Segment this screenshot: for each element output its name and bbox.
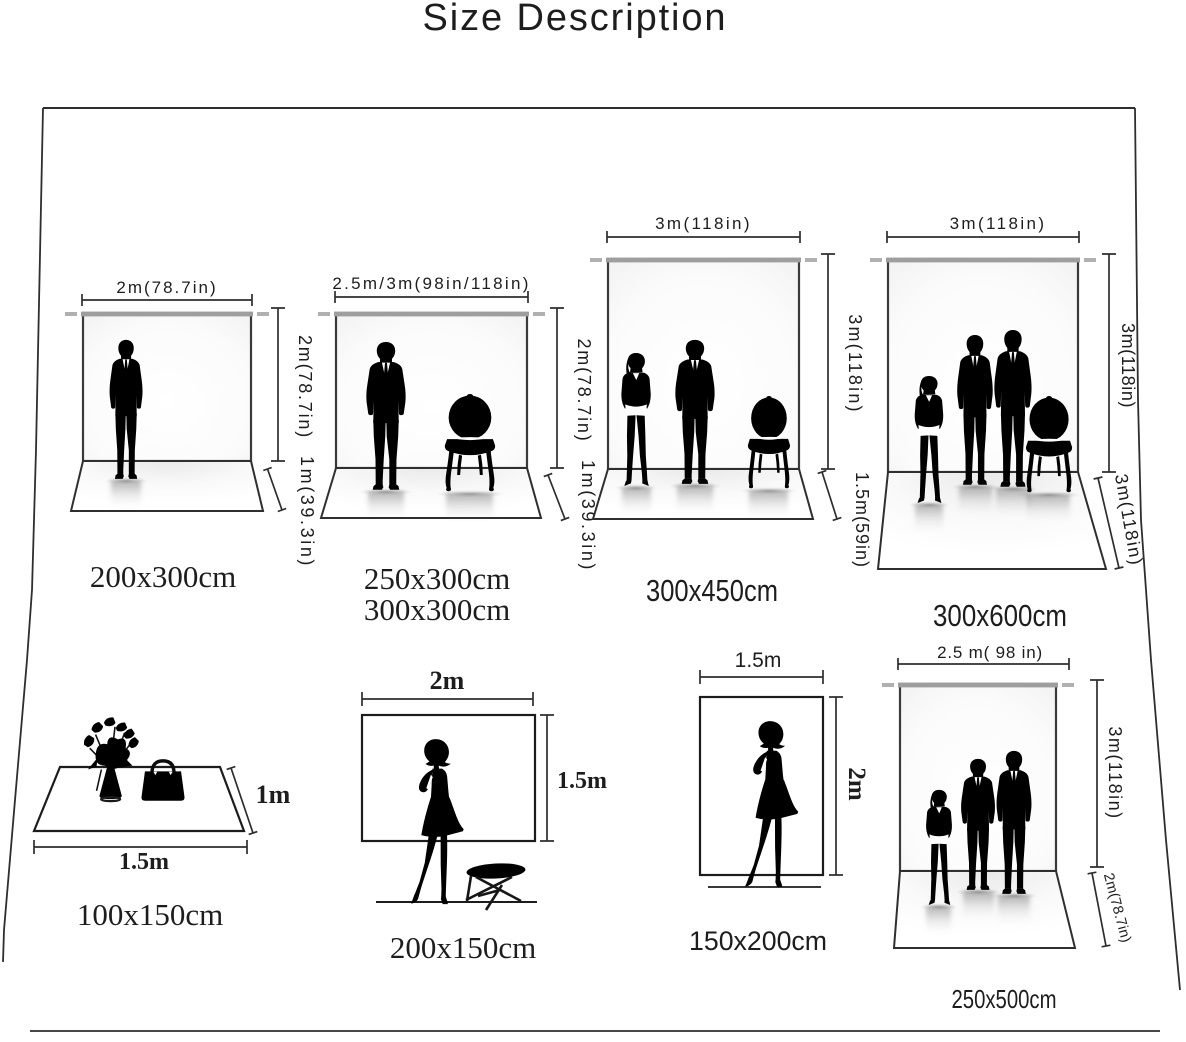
svg-text:2m: 2m xyxy=(430,666,465,695)
svg-text:100x150cm: 100x150cm xyxy=(77,897,223,932)
svg-text:3m(118in): 3m(118in) xyxy=(1105,726,1125,819)
svg-text:2.5 m( 98 in): 2.5 m( 98 in) xyxy=(937,643,1043,662)
svg-text:2.5m/3m(98in/118in): 2.5m/3m(98in/118in) xyxy=(332,274,530,293)
svg-text:Size Description: Size Description xyxy=(423,0,728,39)
svg-text:150x200cm: 150x200cm xyxy=(689,926,827,956)
svg-text:3m(118in): 3m(118in) xyxy=(950,214,1047,233)
svg-text:250x500cm: 250x500cm xyxy=(952,984,1057,1014)
svg-text:1.5m: 1.5m xyxy=(119,849,169,875)
svg-text:1.5m: 1.5m xyxy=(557,768,607,794)
svg-text:3m(118in): 3m(118in) xyxy=(845,314,865,414)
svg-text:2m: 2m xyxy=(843,767,870,801)
svg-text:1.5m(59in): 1.5m(59in) xyxy=(852,472,872,568)
svg-text:2m(78.7in): 2m(78.7in) xyxy=(574,338,594,442)
svg-text:200x300cm: 200x300cm xyxy=(90,559,236,594)
svg-text:300x450cm: 300x450cm xyxy=(646,573,778,608)
svg-text:3m(118in): 3m(118in) xyxy=(655,214,752,233)
svg-text:1m: 1m xyxy=(256,780,291,809)
svg-text:2m(78.7in): 2m(78.7in) xyxy=(295,335,315,439)
svg-text:250x300cm: 250x300cm xyxy=(364,561,510,596)
svg-text:1m(39.3in): 1m(39.3in) xyxy=(297,456,317,568)
svg-text:1.5m: 1.5m xyxy=(735,649,782,672)
svg-text:3m(118in): 3m(118in) xyxy=(1118,323,1138,408)
svg-text:300x600cm: 300x600cm xyxy=(933,598,1067,633)
svg-text:200x150cm: 200x150cm xyxy=(390,930,536,965)
svg-text:2m(78.7in): 2m(78.7in) xyxy=(116,278,217,297)
svg-text:300x300cm: 300x300cm xyxy=(364,592,510,627)
